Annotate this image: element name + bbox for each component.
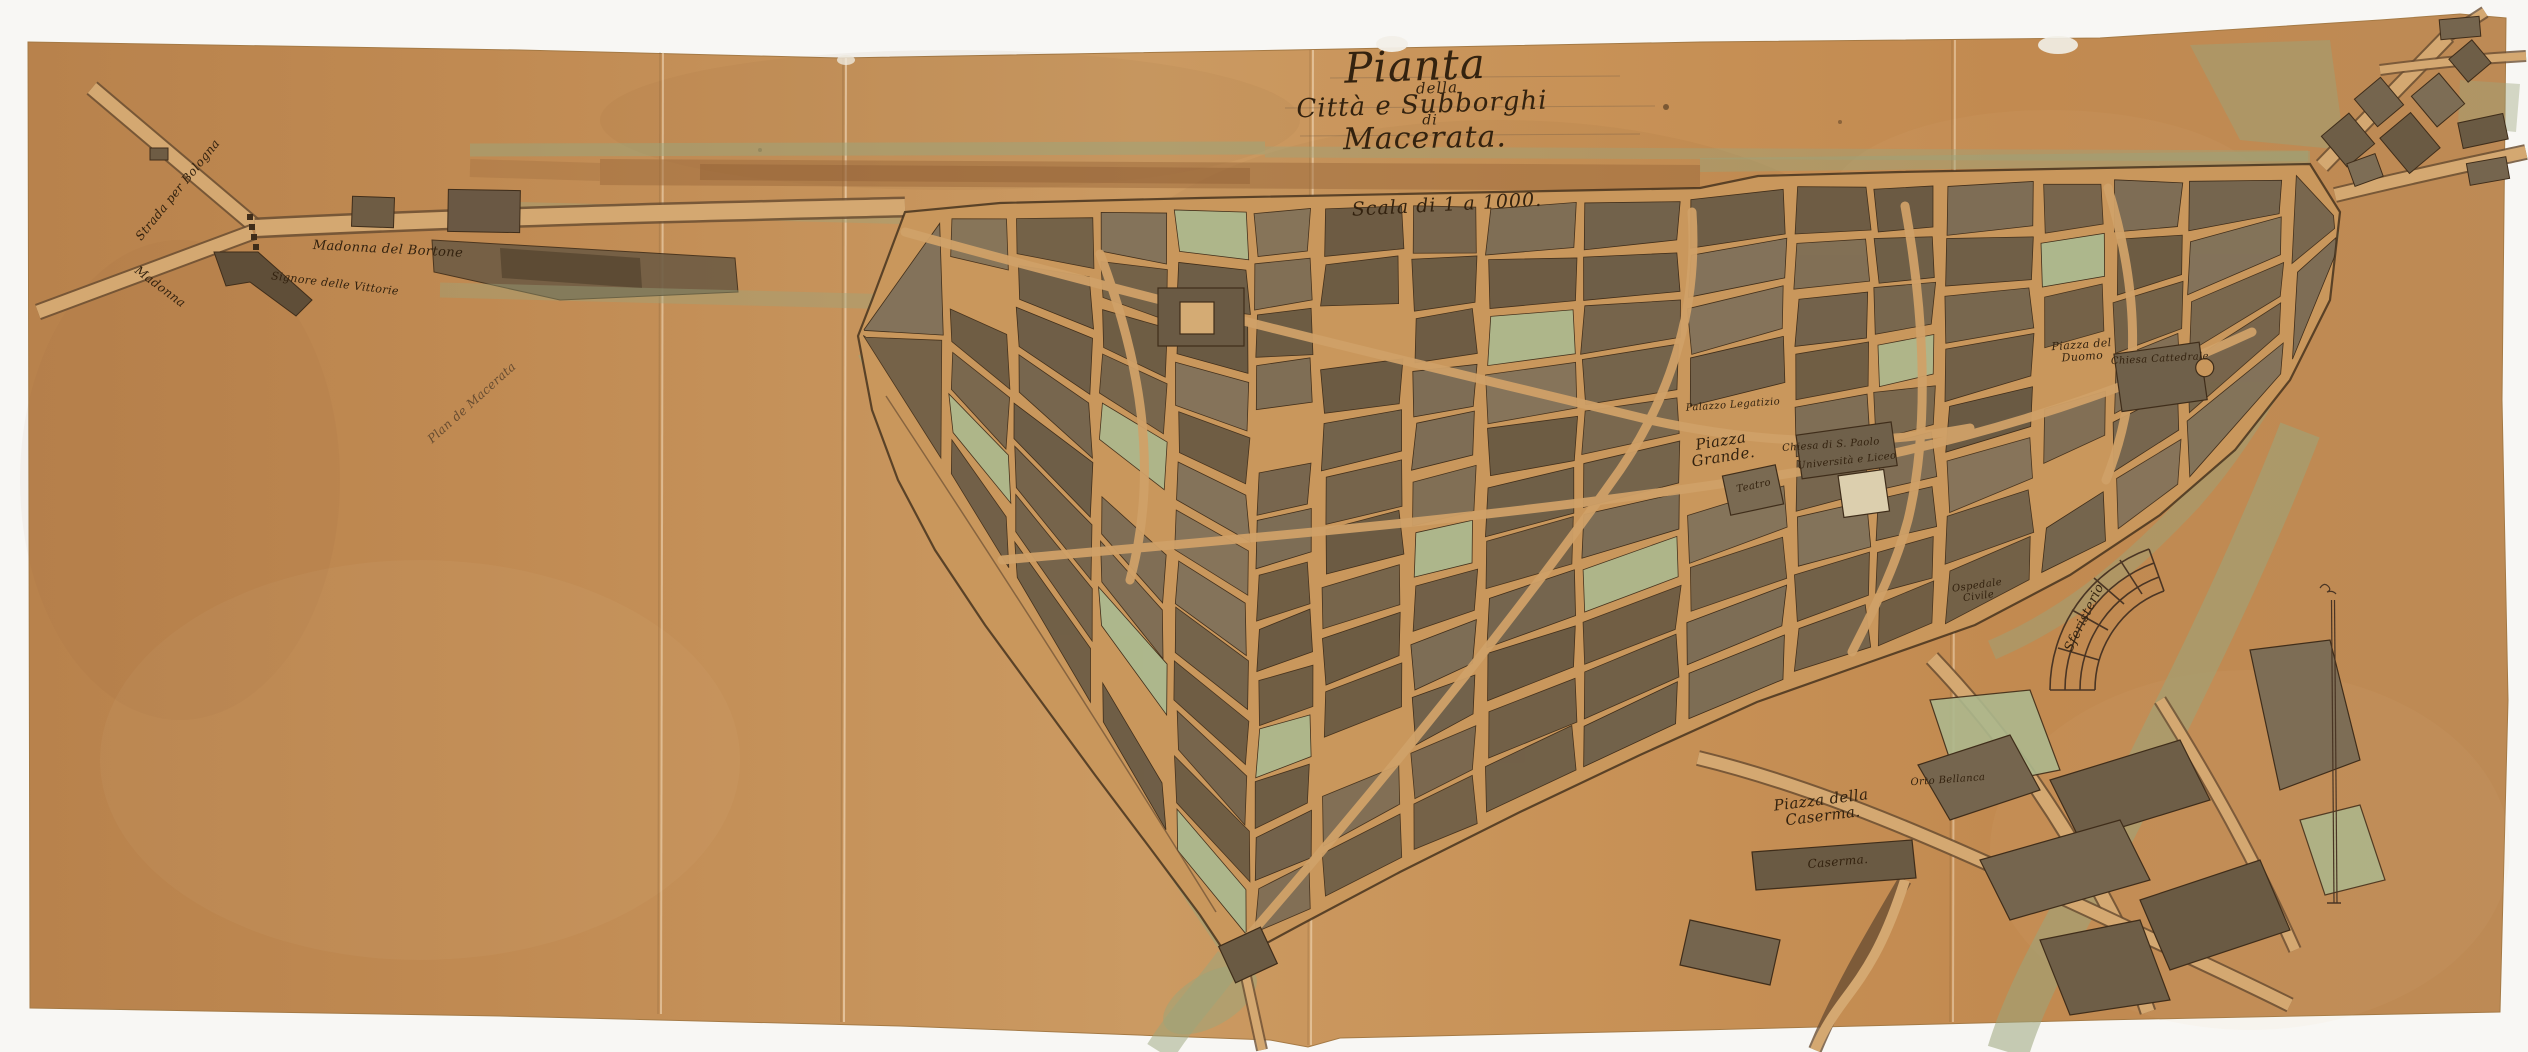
- courtyard-palace: [1158, 288, 1244, 346]
- macerata-map-drawing: [0, 0, 2528, 1052]
- city-block: [1946, 237, 2034, 286]
- city-block: [2115, 180, 2183, 232]
- city-block: [1256, 358, 1312, 410]
- city-block: [1794, 239, 1870, 289]
- map-title-line-5: Macerata.: [1343, 121, 1507, 156]
- city-block: [1254, 209, 1310, 257]
- city-block: [1947, 181, 2033, 235]
- map-scan: Pianta della Città e Subborghi di Macera…: [0, 0, 2528, 1052]
- city-block: [1412, 256, 1477, 311]
- city-block: [1795, 292, 1868, 346]
- city-block: [1795, 187, 1871, 234]
- city-block: [1874, 237, 1934, 283]
- city-block: [1174, 210, 1248, 260]
- city-block: [1489, 258, 1577, 309]
